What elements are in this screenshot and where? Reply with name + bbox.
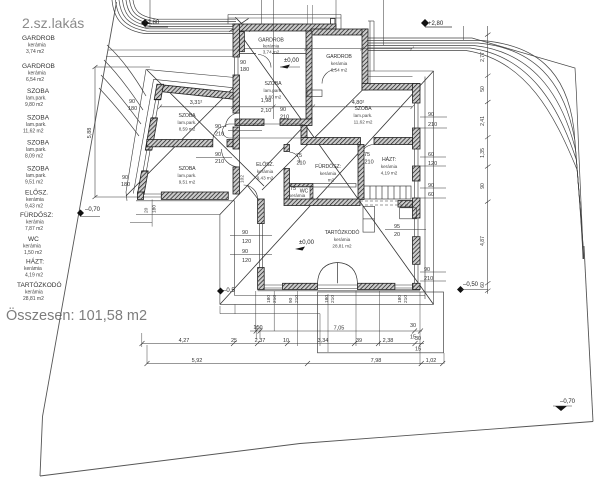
svg-text:SZOBA: SZOBA <box>178 166 196 172</box>
svg-text:–0,50: –0,50 <box>463 282 479 288</box>
svg-text:kerámia: kerámia <box>25 290 43 296</box>
svg-text:1,35: 1,35 <box>480 148 486 158</box>
svg-text:6,54 m2: 6,54 m2 <box>26 77 44 83</box>
svg-text:120: 120 <box>242 258 251 264</box>
svg-text:GARDROB: GARDROB <box>22 63 55 70</box>
svg-text:90: 90 <box>428 112 434 118</box>
svg-text:50: 50 <box>480 86 486 92</box>
svg-text:11,62 m2: 11,62 m2 <box>354 120 373 125</box>
svg-text:3,74 m2: 3,74 m2 <box>26 49 44 55</box>
svg-text:FÜRDŐSZ:: FÜRDŐSZ: <box>20 210 53 219</box>
svg-text:GARDROB: GARDROB <box>326 54 352 60</box>
svg-text:2,10: 2,10 <box>261 108 272 114</box>
svg-text:–0,5: –0,5 <box>223 288 235 294</box>
svg-text:60: 60 <box>428 152 434 158</box>
svg-text:4,19 m2: 4,19 m2 <box>25 273 43 279</box>
svg-text:180: 180 <box>266 295 272 303</box>
svg-text:75: 75 <box>290 186 296 192</box>
svg-text:SZOBA: SZOBA <box>27 140 50 147</box>
svg-text:28,81 m2: 28,81 m2 <box>332 244 352 249</box>
svg-text:Összesen: 101,58 m2: Összesen: 101,58 m2 <box>6 306 147 324</box>
svg-text:210: 210 <box>330 295 336 303</box>
svg-text:150: 150 <box>253 325 262 331</box>
svg-text:210: 210 <box>428 122 437 128</box>
svg-text:9,80 m2: 9,80 m2 <box>25 102 43 108</box>
svg-text:9,43 m2: 9,43 m2 <box>257 176 274 181</box>
svg-text:180: 180 <box>397 295 403 303</box>
svg-text:210: 210 <box>297 161 306 167</box>
svg-text:90: 90 <box>129 99 135 105</box>
svg-text:210: 210 <box>215 132 224 138</box>
svg-text:15: 15 <box>415 347 421 353</box>
svg-text:WC: WC <box>28 236 39 243</box>
svg-text:kerámia: kerámia <box>28 71 46 77</box>
svg-text:5,88: 5,88 <box>87 128 93 139</box>
svg-text:28,81 m2: 28,81 m2 <box>23 296 44 302</box>
svg-text:–0,70: –0,70 <box>85 207 101 213</box>
svg-text:TARTÓZKODÓ: TARTÓZKODÓ <box>17 280 62 289</box>
svg-text:lam.park.: lam.park. <box>26 147 47 153</box>
svg-text:90: 90 <box>215 124 221 130</box>
svg-text:90: 90 <box>480 183 486 189</box>
svg-text:SZOBA: SZOBA <box>178 113 196 119</box>
svg-text:8,59 m2: 8,59 m2 <box>179 127 196 132</box>
svg-text:90: 90 <box>242 249 248 255</box>
svg-text:180: 180 <box>240 67 249 73</box>
svg-text:102: 102 <box>240 175 246 183</box>
svg-text:lam.park.: lam.park. <box>26 96 47 102</box>
svg-text:2,41: 2,41 <box>480 116 486 126</box>
svg-text:7,05: 7,05 <box>334 326 345 332</box>
svg-text:1,50 m2: 1,50 m2 <box>24 250 42 256</box>
svg-text:90: 90 <box>424 267 430 273</box>
svg-text:210: 210 <box>280 115 289 121</box>
svg-text:kerámia: kerámia <box>26 220 44 226</box>
svg-text:180: 180 <box>152 205 158 213</box>
svg-text:90: 90 <box>122 175 128 181</box>
svg-text:180: 180 <box>121 182 130 188</box>
svg-text:5,92: 5,92 <box>192 358 203 364</box>
svg-text:210: 210 <box>272 295 278 303</box>
svg-text:75: 75 <box>296 153 302 159</box>
svg-text:kerámia: kerámia <box>331 61 348 66</box>
svg-text:2,77: 2,77 <box>480 52 486 62</box>
svg-text:2,37: 2,37 <box>255 338 266 344</box>
svg-text:kerámia: kerámia <box>24 266 42 272</box>
svg-text:kerámia: kerámia <box>320 171 337 176</box>
svg-text:90: 90 <box>215 152 221 158</box>
svg-text:+2,80: +2,80 <box>144 20 160 26</box>
svg-text:8,09 m2: 8,09 m2 <box>25 154 43 160</box>
svg-text:3,74 m2: 3,74 m2 <box>263 50 280 55</box>
svg-text:±0,00: ±0,00 <box>299 240 315 246</box>
svg-text:lam.park.: lam.park. <box>354 113 373 118</box>
svg-text:kerámia: kerámia <box>334 237 351 242</box>
svg-text:180: 180 <box>128 106 137 112</box>
svg-text:30: 30 <box>415 336 421 342</box>
svg-text:90: 90 <box>288 297 294 303</box>
svg-text:lam.park.: lam.park. <box>178 173 197 178</box>
svg-text:kerámia: kerámia <box>289 193 306 198</box>
svg-text:2,38: 2,38 <box>383 338 394 344</box>
svg-text:3,34: 3,34 <box>318 338 329 344</box>
svg-text:lam.park.: lam.park. <box>26 173 47 179</box>
svg-text:kerámia: kerámia <box>23 244 41 250</box>
svg-text:lam.park.: lam.park. <box>178 120 197 125</box>
svg-text:2.sz.lakás: 2.sz.lakás <box>22 15 84 31</box>
svg-text:±0,00: ±0,00 <box>284 58 300 64</box>
svg-text:11,62 m2: 11,62 m2 <box>23 129 44 135</box>
svg-text:210: 210 <box>294 295 300 303</box>
svg-text:7,87 m2: 7,87 m2 <box>25 226 43 232</box>
svg-text:95: 95 <box>394 224 400 230</box>
svg-text:9,43 m2: 9,43 m2 <box>25 204 43 210</box>
svg-text:90: 90 <box>240 60 246 66</box>
svg-text:4,19 m2: 4,19 m2 <box>381 171 398 176</box>
svg-text:kerámia: kerámia <box>28 43 46 49</box>
svg-text:210: 210 <box>215 159 224 165</box>
svg-text:60: 60 <box>480 282 486 288</box>
svg-text:9,51 m2: 9,51 m2 <box>25 180 43 186</box>
svg-text:HÁZT:: HÁZT: <box>26 257 44 266</box>
svg-text:6,54 m2: 6,54 m2 <box>331 68 348 73</box>
svg-text:SZOBA: SZOBA <box>27 115 50 122</box>
svg-text:20: 20 <box>394 232 400 238</box>
svg-text:kerámia: kerámia <box>381 164 398 169</box>
svg-text:FÜRDŐSZ:: FÜRDŐSZ: <box>315 163 341 170</box>
svg-text:SZOBA: SZOBA <box>264 81 282 87</box>
svg-text:210: 210 <box>424 276 433 282</box>
svg-text:9,51 m2: 9,51 m2 <box>179 180 196 185</box>
svg-text:kerámia: kerámia <box>257 169 274 174</box>
svg-text:120: 120 <box>428 161 437 167</box>
svg-text:m2: m2 <box>328 178 335 183</box>
svg-text:ELŐSZ.: ELŐSZ. <box>25 188 48 197</box>
svg-text:75: 75 <box>364 152 370 158</box>
svg-text:10: 10 <box>283 338 289 344</box>
svg-text:90: 90 <box>242 230 248 236</box>
svg-text:210: 210 <box>365 160 374 166</box>
svg-text:39: 39 <box>356 338 362 344</box>
svg-text:20: 20 <box>144 207 150 213</box>
svg-text:+2,80: +2,80 <box>428 21 444 27</box>
svg-text:SZOBA: SZOBA <box>27 88 50 95</box>
svg-text:3,31²: 3,31² <box>190 100 203 106</box>
svg-text:lam.park.: lam.park. <box>264 88 283 93</box>
svg-text:210: 210 <box>403 295 409 303</box>
svg-text:lam.park.: lam.park. <box>26 122 47 128</box>
svg-text:SZOBA: SZOBA <box>354 106 372 112</box>
svg-text:120: 120 <box>242 239 251 245</box>
svg-text:kerámia: kerámia <box>263 44 280 49</box>
svg-text:90: 90 <box>428 183 434 189</box>
svg-text:30: 30 <box>410 323 416 329</box>
svg-text:SZOBA: SZOBA <box>27 166 50 173</box>
svg-text:kerámia: kerámia <box>26 197 44 203</box>
svg-text:4,27: 4,27 <box>179 338 190 344</box>
svg-text:60: 60 <box>428 192 434 198</box>
svg-text:–0,70: –0,70 <box>560 399 576 405</box>
svg-text:1,02: 1,02 <box>426 358 437 364</box>
svg-text:HÁZT:: HÁZT: <box>382 156 396 163</box>
svg-text:7,98: 7,98 <box>371 358 382 364</box>
svg-text:4,87: 4,87 <box>480 236 486 246</box>
svg-text:ELŐSZ.: ELŐSZ. <box>256 161 274 168</box>
svg-text:180: 180 <box>324 295 330 303</box>
svg-text:9,80 m2: 9,80 m2 <box>265 95 282 100</box>
svg-text:25: 25 <box>231 338 237 344</box>
svg-text:TARTÓZKODÓ: TARTÓZKODÓ <box>325 229 360 236</box>
svg-text:GARDROB: GARDROB <box>22 35 55 42</box>
svg-text:90: 90 <box>280 107 286 113</box>
